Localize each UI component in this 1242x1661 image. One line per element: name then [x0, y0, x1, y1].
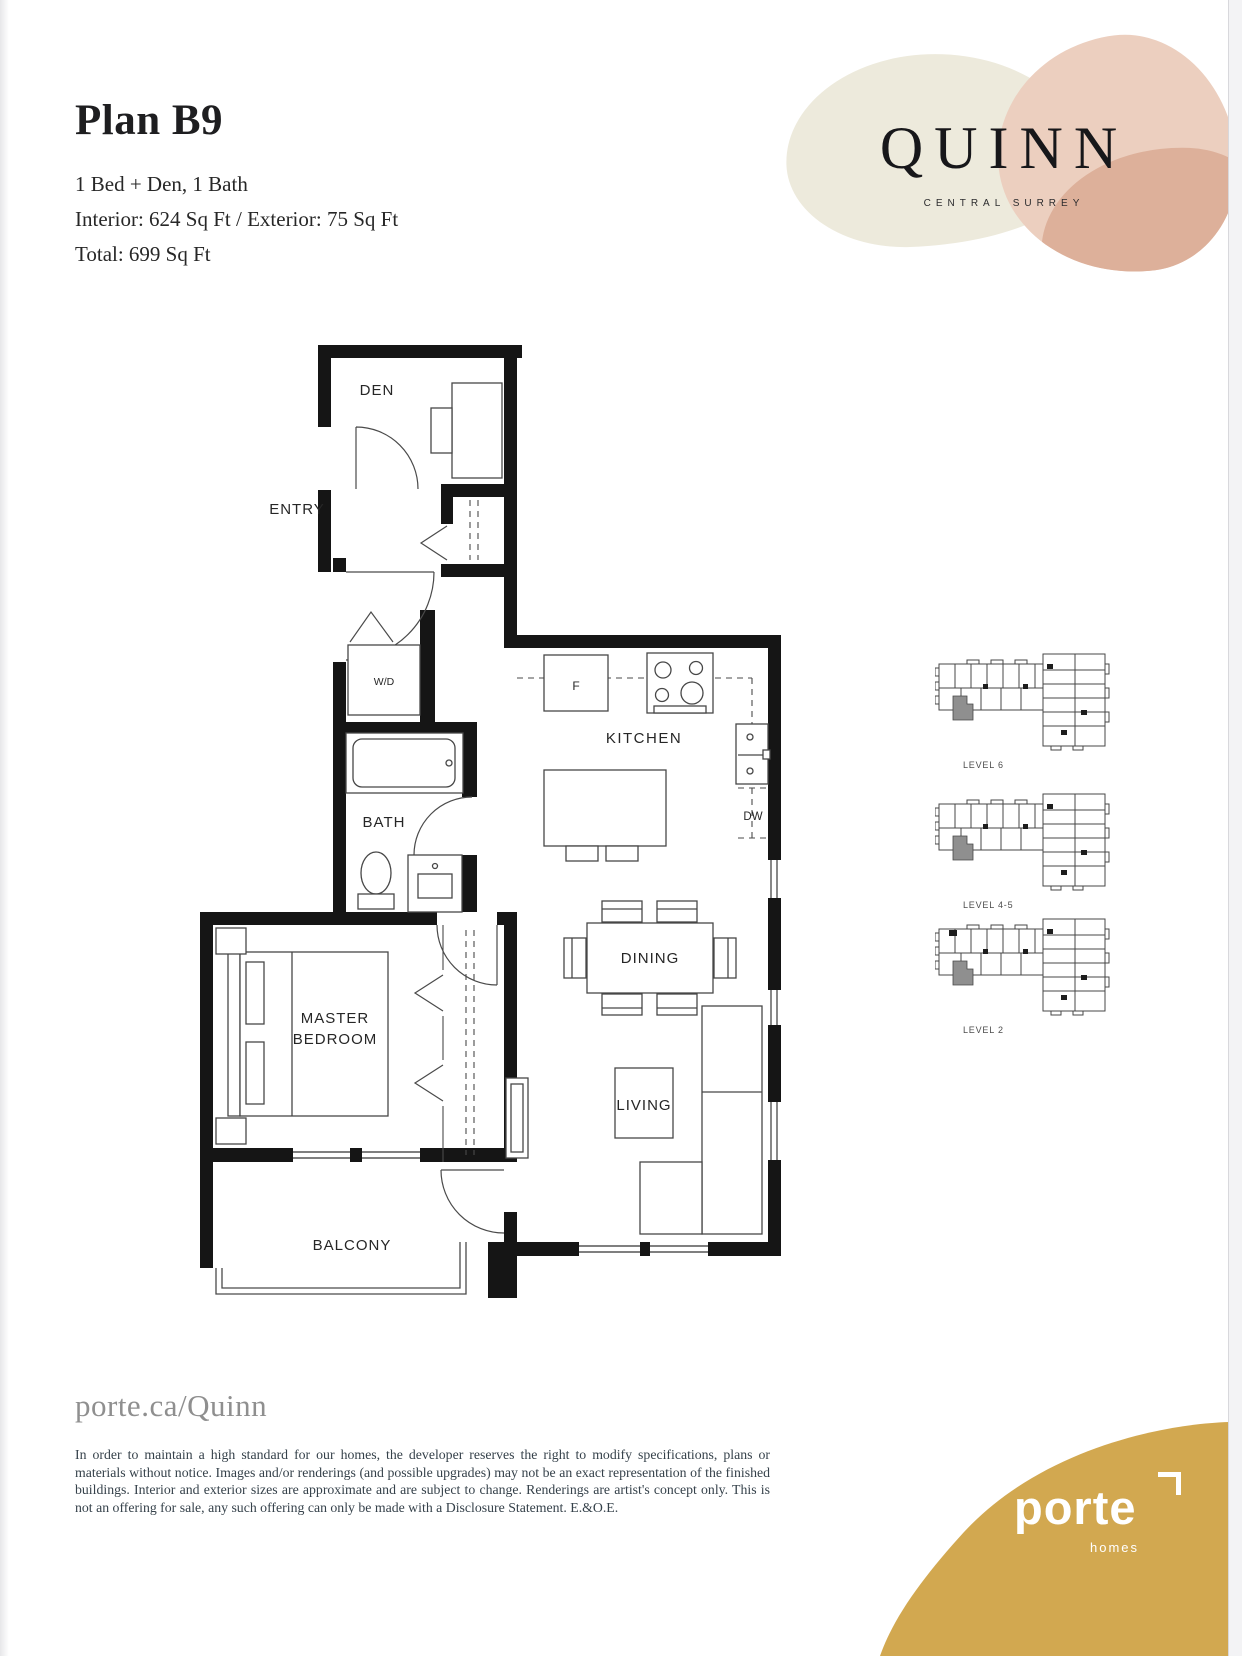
- highlighted-unit: [953, 961, 973, 985]
- room-label-den: DEN: [360, 382, 395, 399]
- appliance-label-fridge: F: [572, 679, 579, 693]
- page-title: Plan B9: [75, 96, 398, 145]
- website-url: porte.ca/Quinn: [75, 1388, 267, 1424]
- tv-console-inner: [511, 1084, 523, 1152]
- pillow: [246, 962, 264, 1024]
- den-desk: [452, 383, 502, 478]
- dining-chair: [564, 938, 586, 978]
- dining-chair: [657, 901, 697, 922]
- highlighted-unit: [953, 696, 973, 720]
- plan-total-area: Total: 699 Sq Ft: [75, 237, 398, 272]
- sofa: [702, 1006, 762, 1234]
- appliance-label-dw: DW: [743, 811, 762, 823]
- tub-faucet: [446, 760, 452, 766]
- laundry-door: [350, 612, 393, 642]
- island-stool: [566, 846, 598, 861]
- stove-panel: [654, 706, 706, 713]
- keyplan-level-4-5: LEVEL 4-5: [935, 790, 1117, 922]
- porte-homes-label: homes: [1090, 1540, 1139, 1555]
- room-label-balcony: BALCONY: [313, 1237, 392, 1254]
- nightstand: [216, 1118, 246, 1144]
- disclaimer-text: In order to maintain a high standard for…: [75, 1446, 770, 1516]
- stove: [647, 653, 713, 713]
- floor-plan: DEN ENTRY W/D BATH KITCHEN F DW DINING L…: [190, 330, 781, 1315]
- kitchen-faucet: [763, 750, 770, 759]
- appliance-label-wd: W/D: [374, 676, 395, 688]
- keyplan-level-2: LEVEL 2: [935, 915, 1117, 1047]
- room-label-master-1: MASTER: [301, 1010, 370, 1027]
- den-door: [356, 427, 418, 489]
- kitchen-island: [544, 770, 666, 846]
- island-stool: [606, 846, 638, 861]
- room-label-master-2: BEDROOM: [293, 1031, 378, 1048]
- room-label-entry: ENTRY: [269, 501, 325, 518]
- keyplan-label: LEVEL 6: [963, 760, 1004, 770]
- keyplan-drawing: [935, 915, 1115, 1017]
- pillow: [246, 1042, 264, 1104]
- plan-header: Plan B9 1 Bed + Den, 1 Bath Interior: 62…: [75, 96, 398, 272]
- room-label-bath: BATH: [363, 814, 406, 831]
- bath-door: [414, 797, 472, 855]
- bedroom-closet-doors: [415, 975, 443, 1101]
- sofa-chaise: [640, 1162, 702, 1234]
- quinn-logo: QUINN CENTRAL SURREY: [778, 28, 1230, 273]
- brand-wordmark: QUINN: [824, 114, 1184, 183]
- bedroom-door: [437, 925, 497, 985]
- keyplan-drawing: [935, 650, 1115, 752]
- porte-wordmark: porte: [1014, 1480, 1137, 1535]
- keyplan-label: LEVEL 4-5: [963, 900, 1013, 910]
- porte-logo: porte homes: [872, 1414, 1229, 1656]
- dining-chair: [602, 901, 642, 922]
- toilet-bowl: [361, 852, 391, 894]
- den-chair: [431, 408, 452, 453]
- room-label-kitchen: KITCHEN: [606, 730, 682, 747]
- toilet-tank: [358, 894, 394, 909]
- sink-faucet: [433, 864, 438, 869]
- brand-tagline: CENTRAL SURREY: [824, 198, 1184, 209]
- hall-closet-door: [421, 526, 447, 560]
- room-label-living: LIVING: [616, 1097, 671, 1114]
- plan-configuration: 1 Bed + Den, 1 Bath: [75, 167, 398, 202]
- dining-chair: [602, 994, 642, 1015]
- bed-headboard: [228, 952, 240, 1116]
- bath-sink: [418, 874, 452, 898]
- plan-areas: Interior: 624 Sq Ft / Exterior: 75 Sq Ft: [75, 202, 398, 237]
- keyplan-level-6: LEVEL 6: [935, 650, 1117, 782]
- bathtub-inner: [353, 739, 455, 787]
- gold-curve-shape: [872, 1414, 1229, 1656]
- page-edge-right: [1228, 0, 1242, 1656]
- porte-bracket-icon: [1158, 1472, 1181, 1495]
- dining-chair: [714, 938, 736, 978]
- nightstand: [216, 928, 246, 954]
- keyplan-label: LEVEL 2: [963, 1025, 1004, 1035]
- floor-plan-walls: [200, 345, 781, 1298]
- keyplan-drawing: [935, 790, 1115, 892]
- highlighted-unit: [953, 836, 973, 860]
- balcony-door: [441, 1170, 504, 1233]
- room-label-dining: DINING: [621, 950, 680, 967]
- page-edge-left: [0, 0, 9, 1656]
- dining-chair: [657, 994, 697, 1015]
